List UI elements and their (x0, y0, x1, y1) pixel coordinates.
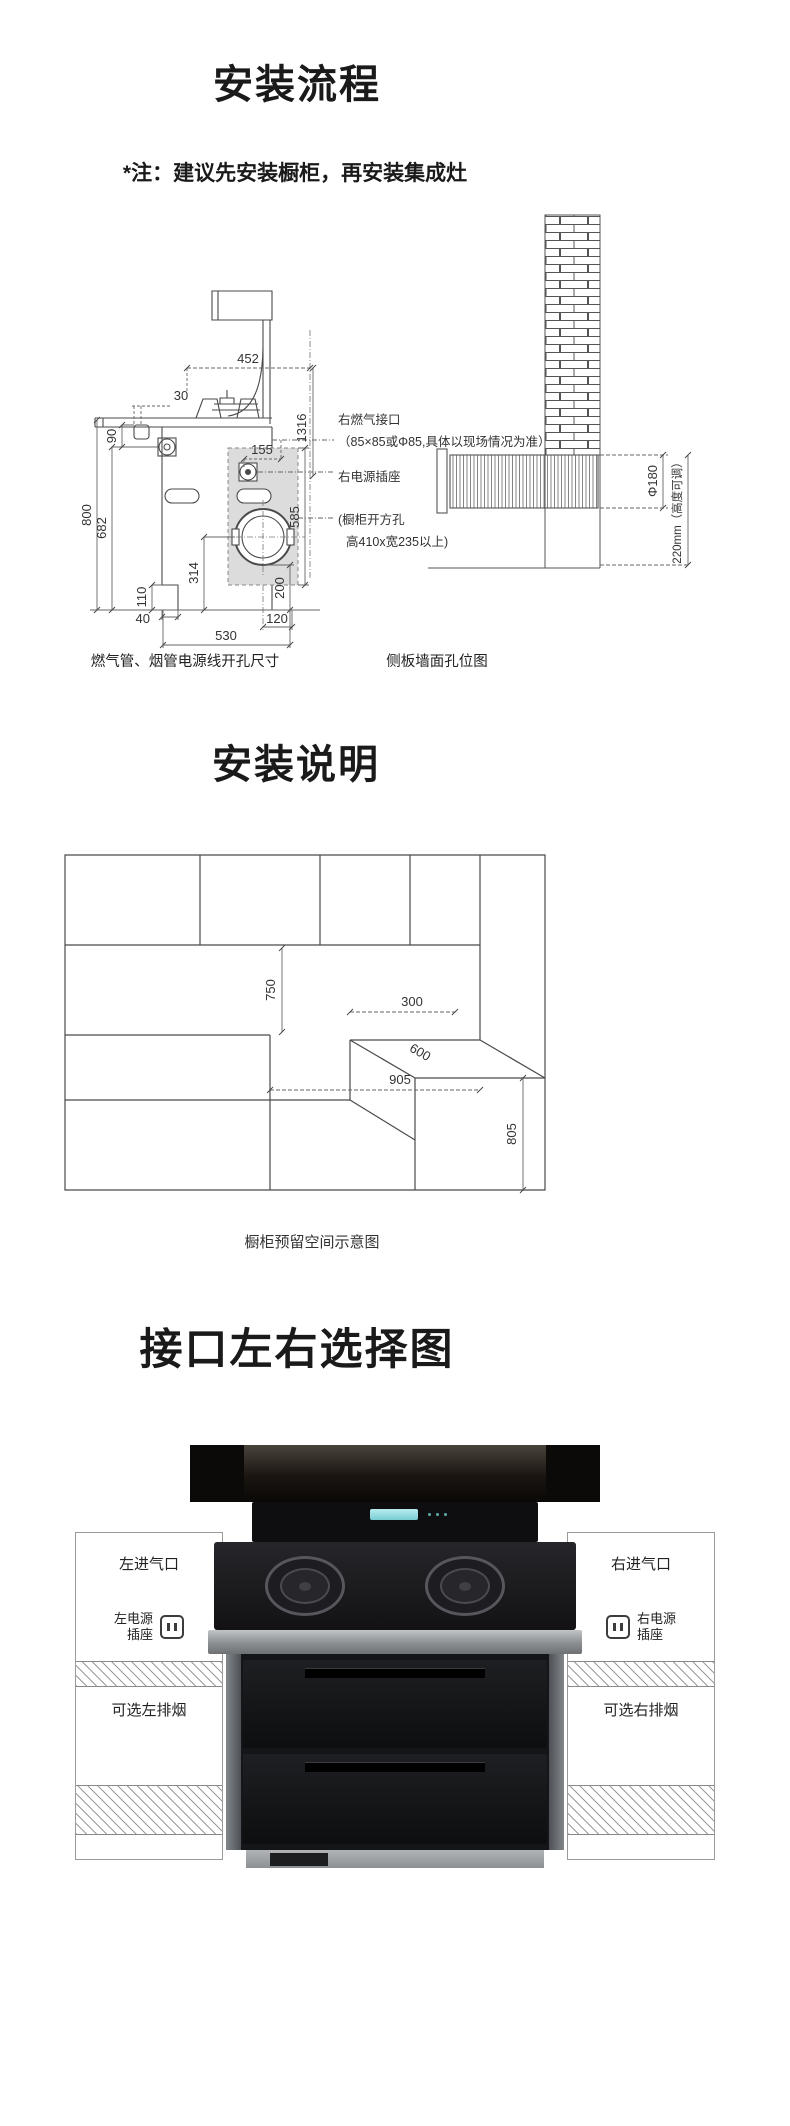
dim-90: 90 (104, 429, 119, 443)
power-socket-icon (606, 1615, 630, 1639)
drawer-handle (305, 1668, 485, 1678)
dim-682: 682 (94, 517, 109, 539)
dim-750: 750 (263, 979, 278, 1001)
dim-200: 200 (272, 577, 287, 599)
right-power-line1: 右电源 (637, 1611, 676, 1627)
right-air-inlet-label: 右进气口 (568, 1553, 714, 1574)
stove-base (246, 1850, 544, 1868)
left-power-line2: 插座 (114, 1627, 153, 1643)
wall-drawing (428, 215, 600, 568)
stove-body (226, 1654, 564, 1850)
canopy-end-left (190, 1445, 244, 1502)
dim-314: 314 (186, 562, 201, 584)
stove-front-edge (208, 1630, 582, 1654)
dim-530: 530 (215, 628, 237, 643)
install-note: *注：建议先安装橱柜，再安装集成灶 (123, 157, 467, 187)
power-socket-icon (160, 1615, 184, 1639)
hole-diagram-caption: 燃气管、烟管电源线开孔尺寸 (91, 652, 280, 670)
left-power-label: 左电源 插座 (114, 1611, 153, 1643)
base-vent (270, 1853, 328, 1866)
canopy-end-right (546, 1445, 600, 1502)
product-install-page: 安装流程 *注：建议先安装橱柜，再安装集成灶 (0, 0, 790, 2126)
dim-805: 805 (504, 1123, 519, 1145)
wall-diagram-caption: 侧板墙面孔位图 (386, 652, 488, 670)
drawer-handle (305, 1762, 485, 1772)
dim-155: 155 (251, 442, 273, 457)
dim-hole-diameter: Φ180 (645, 465, 660, 497)
gas-spec-annotation: （85×85或Φ85,具体以现场情况为准） (338, 435, 550, 449)
right-power-row: 右电源 插座 (568, 1611, 714, 1643)
dim-120: 120 (266, 611, 288, 626)
hatch-band (568, 1785, 714, 1835)
install-process-title: 安装流程 (213, 52, 381, 110)
stove-display (370, 1509, 418, 1520)
cabinet-dimension-lines (267, 945, 526, 1193)
left-power-line1: 左电源 (114, 1611, 153, 1627)
interface-selection-title: 接口左右选择图 (140, 1315, 455, 1377)
left-burner (265, 1556, 345, 1616)
cutout-annotation-line1: (橱柜开方孔 (338, 512, 405, 527)
dim-585: 585 (287, 506, 302, 528)
cabinet-drawing (65, 855, 545, 1190)
dim-800: 800 (79, 504, 94, 526)
duct-flange (437, 449, 447, 513)
right-interface-card: 右进气口 右电源 插座 可选右排烟 (567, 1532, 715, 1860)
gas-port-annotation: 右燃气接口 (338, 412, 401, 427)
stove-side-panel-right (549, 1654, 564, 1850)
left-air-inlet-label: 左进气口 (76, 1553, 222, 1574)
right-burner (425, 1556, 505, 1616)
socket-annotation: 右电源插座 (338, 469, 401, 484)
cabinet-diagram-caption: 橱柜预留空间示意图 (244, 1233, 379, 1251)
upper-drawer (243, 1660, 547, 1748)
dim-40: 40 (136, 611, 150, 626)
left-vent-label: 可选左排烟 (76, 1699, 222, 1720)
dim-110: 110 (134, 587, 149, 608)
hatch-band (568, 1661, 714, 1687)
right-power-line2: 插座 (637, 1627, 676, 1643)
indicator-dot (428, 1513, 431, 1516)
right-power-label: 右电源 插座 (637, 1611, 676, 1643)
dim-452: 452 (237, 351, 259, 366)
right-vent-label: 可选右排烟 (568, 1699, 714, 1720)
cutout-annotation-line2: 高410x宽235以上) (346, 534, 448, 549)
hole-position-diagrams: 452 30 90 155 1316 585 200 314 682 800 1… (0, 200, 790, 680)
indicator-dot (436, 1513, 439, 1516)
hatch-band (76, 1661, 222, 1687)
dim-600: 600 (407, 1040, 433, 1064)
corrugated-duct (450, 455, 598, 508)
dim-height-adjustable: 220mm（高度可调） (670, 456, 684, 563)
dim-300: 300 (401, 994, 423, 1009)
indicator-dot (444, 1513, 447, 1516)
brick-wall (545, 215, 600, 455)
left-power-row: 左电源 插座 (76, 1611, 222, 1643)
stove-control-head (252, 1502, 538, 1542)
install-instruction-title: 安装说明 (212, 732, 380, 790)
hatch-band (76, 1785, 222, 1835)
lower-drawer (243, 1754, 547, 1844)
cabinet-clearance-diagram: 750 300 600 905 805 橱柜预留空间示意图 (0, 840, 790, 1260)
dim-1316: 1316 (294, 414, 309, 443)
stove-hood-canopy (190, 1445, 600, 1502)
stove-side-panel-left (226, 1654, 241, 1850)
stove-hob (214, 1542, 576, 1630)
dim-905: 905 (389, 1072, 411, 1087)
dim-30: 30 (174, 388, 188, 403)
left-interface-card: 左进气口 左电源 插座 可选左排烟 (75, 1532, 223, 1860)
